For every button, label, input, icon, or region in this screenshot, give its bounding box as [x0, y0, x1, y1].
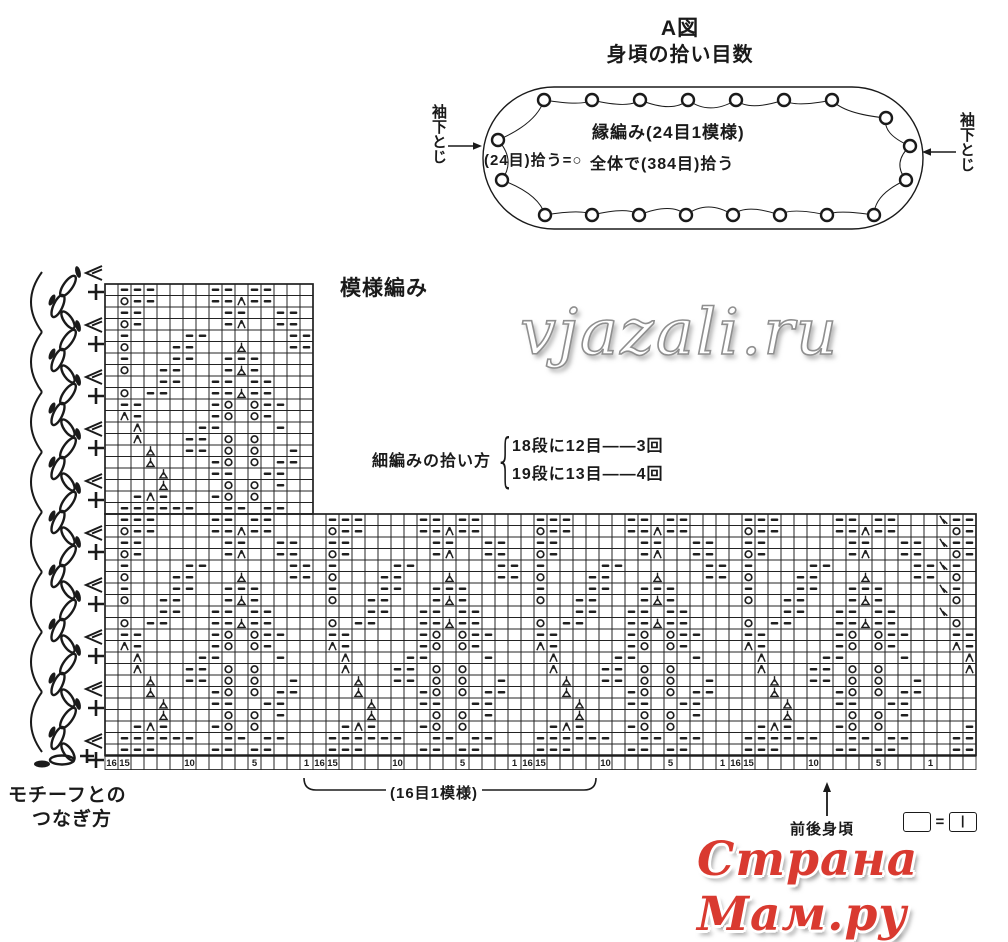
chart-cell — [248, 537, 261, 549]
purl-symbol — [888, 645, 896, 647]
purl-symbol — [277, 473, 285, 475]
purl-symbol — [121, 749, 129, 751]
purl-symbol — [914, 565, 922, 567]
chart-cell — [651, 664, 664, 676]
chart-cell — [261, 560, 274, 572]
chart-cell — [755, 698, 768, 710]
chart-cell — [326, 606, 339, 618]
chart-cell — [183, 491, 196, 503]
repeat-brace-label: (16目1模様) — [386, 782, 482, 803]
chart-cell — [794, 549, 807, 561]
chart-cell — [820, 549, 833, 561]
chart-cell — [924, 549, 937, 561]
chart-cell — [950, 664, 963, 676]
purl-symbol — [121, 519, 129, 521]
chart-cell — [261, 330, 274, 342]
purl-symbol — [433, 737, 441, 739]
chart-cell — [781, 560, 794, 572]
purl-symbol — [771, 530, 779, 532]
chart-cell — [300, 744, 313, 756]
chart-cell — [287, 434, 300, 446]
purl-symbol — [121, 565, 129, 567]
chart-cell — [183, 514, 196, 526]
purl-symbol — [680, 519, 688, 521]
number-cell — [950, 756, 963, 770]
purl-symbol — [875, 530, 883, 532]
yarnover-symbol — [953, 597, 960, 604]
chart-cell — [820, 698, 833, 710]
chart-cell — [131, 342, 144, 354]
purl-symbol — [342, 542, 350, 544]
chart-cell — [547, 687, 560, 699]
chart-cell — [287, 744, 300, 756]
chart-cell — [235, 675, 248, 687]
chart-cell — [105, 744, 118, 756]
chart-cell — [313, 744, 326, 756]
chart-cell — [144, 572, 157, 584]
pickup-stitch-circle — [900, 174, 912, 186]
chart-cell — [170, 641, 183, 653]
purl-symbol — [446, 588, 454, 590]
chart-cell — [521, 652, 534, 664]
scallop-arc — [640, 100, 688, 107]
chart-cell — [196, 572, 209, 584]
chart-cell — [885, 664, 898, 676]
purl-symbol — [433, 519, 441, 521]
chart-cell — [859, 744, 872, 756]
chart-cell — [716, 537, 729, 549]
purl-symbol — [472, 703, 480, 705]
chart-cell — [209, 572, 222, 584]
chart-cell — [196, 733, 209, 745]
chart-cell — [586, 618, 599, 630]
purl-symbol — [784, 611, 792, 613]
chart-cell — [144, 537, 157, 549]
chart-cell — [677, 537, 690, 549]
chart-cell — [508, 641, 521, 653]
chart-cell — [300, 710, 313, 722]
chart-cell — [690, 514, 703, 526]
chart-cell — [716, 698, 729, 710]
chart-cell — [196, 491, 209, 503]
purl-symbol — [251, 369, 259, 371]
purl-symbol — [186, 358, 194, 360]
purl-symbol — [758, 519, 766, 521]
purl-symbol — [589, 576, 597, 578]
purl-symbol — [888, 749, 896, 751]
yarnover-symbol — [875, 689, 882, 696]
legend-blank-box — [903, 812, 931, 832]
chart-cell — [131, 606, 144, 618]
chart-cell — [911, 698, 924, 710]
purl-symbol — [485, 714, 493, 716]
double-decrease-symbol — [238, 527, 245, 535]
chart-cell — [482, 675, 495, 687]
purl-symbol — [823, 657, 831, 659]
chart-cell — [599, 595, 612, 607]
chart-cell — [573, 687, 586, 699]
chart-cell — [417, 733, 430, 745]
purl-symbol — [836, 530, 844, 532]
purl-symbol — [459, 530, 467, 532]
chart-cell — [378, 549, 391, 561]
yarnover-symbol — [641, 643, 648, 650]
chart-cell — [105, 664, 118, 676]
chart-cell — [612, 537, 625, 549]
chart-cell — [209, 434, 222, 446]
number-cell — [378, 756, 391, 770]
purl-symbol — [121, 542, 129, 544]
purl-symbol — [615, 668, 623, 670]
chart-cell — [911, 721, 924, 733]
chart-cell — [430, 572, 443, 584]
chart-cell — [911, 629, 924, 641]
chart-cell — [105, 388, 118, 400]
chart-cell — [612, 698, 625, 710]
purl-symbol — [121, 335, 129, 337]
yarnover-symbol — [121, 574, 128, 581]
chart-cell — [482, 560, 495, 572]
chart-cell — [313, 652, 326, 664]
chart-cell — [144, 468, 157, 480]
chart-cell — [183, 744, 196, 756]
chart-cell — [716, 583, 729, 595]
chart-cell — [105, 353, 118, 365]
purl-symbol — [251, 381, 259, 383]
chart-cell — [131, 595, 144, 607]
stitch-number: 15 — [743, 758, 754, 769]
join-triangle — [86, 370, 102, 384]
chart-cell — [677, 721, 690, 733]
chart-cell — [339, 618, 352, 630]
purl-symbol — [290, 553, 298, 555]
chart-cell — [300, 618, 313, 630]
chart-cell — [508, 514, 521, 526]
purl-symbol — [654, 737, 662, 739]
purl-symbol — [251, 599, 259, 601]
chart-cell — [729, 537, 742, 549]
purl-symbol — [498, 565, 506, 567]
purl-symbol — [550, 553, 558, 555]
purl-symbol — [173, 599, 181, 601]
purl-symbol — [745, 634, 753, 636]
chart-cell — [261, 319, 274, 331]
chart-cell — [833, 733, 846, 745]
motif-join-label-line2: つなぎ方 — [32, 804, 112, 831]
purl-symbol — [277, 312, 285, 314]
central-decrease-symbol — [771, 676, 778, 685]
yarnover-symbol — [251, 723, 258, 730]
chart-cell — [508, 687, 521, 699]
watermark-stranamam: Страна Мам.ру — [697, 832, 1008, 942]
purl-symbol — [901, 691, 909, 693]
chart-cell — [651, 629, 664, 641]
chart-cell — [573, 549, 586, 561]
chart-cell — [248, 468, 261, 480]
chart-cell — [274, 388, 287, 400]
chart-cell — [144, 710, 157, 722]
chart-cell — [482, 583, 495, 595]
chart-cell — [170, 491, 183, 503]
chart-cell — [261, 710, 274, 722]
purl-symbol — [277, 507, 285, 509]
chart-cell — [781, 572, 794, 584]
purl-symbol — [771, 519, 779, 521]
purl-symbol — [537, 588, 545, 590]
purl-symbol — [433, 542, 441, 544]
double-decrease-symbol — [342, 665, 349, 673]
chart-cell — [755, 572, 768, 584]
chart-cell — [352, 698, 365, 710]
chart-cell — [495, 733, 508, 745]
chart-cell — [391, 641, 404, 653]
chart-cell — [703, 606, 716, 618]
chart-cell — [274, 675, 287, 687]
yarnover-symbol — [745, 551, 752, 558]
chart-cell — [781, 583, 794, 595]
chart-cell — [118, 710, 131, 722]
yarnover-symbol — [225, 723, 232, 730]
purl-symbol — [160, 496, 168, 498]
chart-cell — [209, 595, 222, 607]
chart-cell — [573, 641, 586, 653]
chart-cell — [898, 721, 911, 733]
purl-symbol — [966, 749, 974, 751]
chart-cell — [768, 664, 781, 676]
stitch-number: 16 — [522, 758, 533, 769]
chart-cell — [443, 721, 456, 733]
purl-symbol — [875, 588, 883, 590]
yarnover-symbol — [329, 551, 336, 558]
purl-symbol — [225, 588, 233, 590]
chart-cell — [144, 330, 157, 342]
chart-cell — [781, 514, 794, 526]
join-triangle — [86, 474, 102, 488]
central-decrease-symbol — [654, 596, 661, 605]
purl-symbol — [459, 588, 467, 590]
yarnover-symbol — [121, 620, 128, 627]
chart-cell — [508, 618, 521, 630]
chart-cell — [287, 514, 300, 526]
sc-plus — [88, 336, 104, 352]
chart-cell — [794, 710, 807, 722]
chart-cell — [261, 434, 274, 446]
chart-cell — [898, 572, 911, 584]
chart-cell — [300, 445, 313, 457]
chart-cell — [625, 595, 638, 607]
purl-symbol — [836, 634, 844, 636]
purl-symbol — [394, 680, 402, 682]
purl-symbol — [225, 519, 233, 521]
body-arrow-up — [820, 782, 834, 816]
purl-symbol — [849, 611, 857, 613]
chart-cell — [170, 422, 183, 434]
chart-cell — [807, 549, 820, 561]
chart-cell — [157, 342, 170, 354]
purl-symbol — [394, 737, 402, 739]
chart-cell — [300, 652, 313, 664]
chart-cell — [209, 445, 222, 457]
chart-cell — [729, 664, 742, 676]
central-decrease-symbol — [147, 458, 154, 467]
pickup-stitch-circle — [633, 209, 645, 221]
chart-cell — [170, 549, 183, 561]
yarnover-symbol — [875, 666, 882, 673]
chart-cell — [248, 698, 261, 710]
purl-symbol — [134, 415, 142, 417]
chart-cell — [456, 549, 469, 561]
number-cell — [911, 756, 924, 770]
purl-symbol — [134, 726, 142, 728]
chart-cell — [170, 537, 183, 549]
join-triangle — [86, 526, 102, 540]
chart-cell — [352, 595, 365, 607]
chart-cell — [235, 629, 248, 641]
purl-symbol — [134, 312, 142, 314]
yarnover-symbol — [433, 677, 440, 684]
chart-cell — [287, 698, 300, 710]
chart-cell — [274, 365, 287, 377]
chart-cell — [729, 583, 742, 595]
chart-cell — [196, 376, 209, 388]
chart-cell — [300, 503, 313, 515]
chart-cell — [105, 296, 118, 308]
chart-cell — [911, 583, 924, 595]
chart-cell — [144, 353, 157, 365]
chart-cell — [105, 491, 118, 503]
chart-cell — [313, 710, 326, 722]
chart-cell — [339, 710, 352, 722]
chart-cell — [729, 698, 742, 710]
chart-cell — [196, 710, 209, 722]
purl-symbol — [355, 530, 363, 532]
chart-cell — [508, 595, 521, 607]
chart-cell — [794, 537, 807, 549]
yarnover-symbol — [849, 677, 856, 684]
yarnover-symbol — [745, 528, 752, 535]
chart-cell — [313, 664, 326, 676]
purl-symbol — [420, 645, 428, 647]
yarnover-symbol — [953, 574, 960, 581]
purl-symbol — [420, 749, 428, 751]
chart-cell — [768, 641, 781, 653]
yarnover-symbol — [953, 528, 960, 535]
number-cell — [638, 756, 651, 770]
purl-symbol — [615, 565, 623, 567]
yarnover-symbol — [225, 643, 232, 650]
central-decrease-symbol — [446, 596, 453, 605]
purl-symbol — [498, 542, 506, 544]
chart-cell — [469, 595, 482, 607]
chart-cell — [716, 710, 729, 722]
purl-symbol — [160, 392, 168, 394]
chart-cell — [651, 698, 664, 710]
scallop-arc — [688, 100, 736, 108]
chart-cell — [391, 549, 404, 561]
chart-cell — [339, 698, 352, 710]
chart-cell — [508, 629, 521, 641]
chart-cell — [521, 595, 534, 607]
chart-cell — [690, 675, 703, 687]
chart-cell — [170, 434, 183, 446]
yarnover-symbol — [121, 344, 128, 351]
yarnover-symbol — [537, 551, 544, 558]
chart-cell — [391, 629, 404, 641]
chart-cell — [248, 652, 261, 664]
chart-cell — [729, 560, 742, 572]
chart-cell — [495, 606, 508, 618]
purl-symbol — [212, 404, 220, 406]
chart-cell — [352, 664, 365, 676]
purl-symbol — [550, 634, 558, 636]
purl-symbol — [576, 599, 584, 601]
chart-cell — [651, 687, 664, 699]
chart-cell — [105, 480, 118, 492]
purl-symbol — [186, 438, 194, 440]
chart-cell — [378, 618, 391, 630]
right-decrease-symbol — [940, 516, 947, 524]
chart-cell — [482, 606, 495, 618]
purl-symbol — [225, 622, 233, 624]
purl-symbol — [667, 588, 675, 590]
chart-cell — [105, 595, 118, 607]
chart-cell — [170, 687, 183, 699]
chart-cell — [651, 560, 664, 572]
chart-cell — [209, 583, 222, 595]
chart-cell — [157, 514, 170, 526]
chart-cell — [547, 618, 560, 630]
chart-cell — [781, 744, 794, 756]
chart-cell — [274, 514, 287, 526]
purl-symbol — [914, 542, 922, 544]
chart-cell — [560, 710, 573, 722]
chart-cell — [547, 560, 560, 572]
chart-cell — [144, 664, 157, 676]
sc-plus — [88, 492, 104, 508]
yarnover-symbol — [849, 643, 856, 650]
chart-cell — [157, 744, 170, 756]
purl-symbol — [433, 530, 441, 532]
purl-symbol — [329, 749, 337, 751]
chart-cell — [157, 319, 170, 331]
chart-cell — [170, 721, 183, 733]
chart-cell — [118, 376, 131, 388]
purl-symbol — [264, 300, 272, 302]
chart-cell — [560, 664, 573, 676]
chart-cell — [183, 537, 196, 549]
chart-cell — [664, 549, 677, 561]
chart-cell — [755, 583, 768, 595]
chart-cell — [378, 698, 391, 710]
purl-symbol — [771, 737, 779, 739]
purl-symbol — [810, 668, 818, 670]
chart-cell — [625, 583, 638, 595]
purl-symbol — [758, 737, 766, 739]
chart-cell — [196, 319, 209, 331]
chart-cell — [469, 572, 482, 584]
chart-cell — [560, 583, 573, 595]
chart-cell — [196, 537, 209, 549]
purl-symbol — [160, 381, 168, 383]
chart-cell — [677, 595, 690, 607]
yarnover-symbol — [251, 436, 258, 443]
purl-symbol — [706, 691, 714, 693]
sleeve-seam-label-right: 袖下とじ — [956, 112, 977, 212]
chart-cell — [365, 641, 378, 653]
chart-cell — [573, 652, 586, 664]
chart-cell — [209, 342, 222, 354]
chart-cell — [859, 721, 872, 733]
